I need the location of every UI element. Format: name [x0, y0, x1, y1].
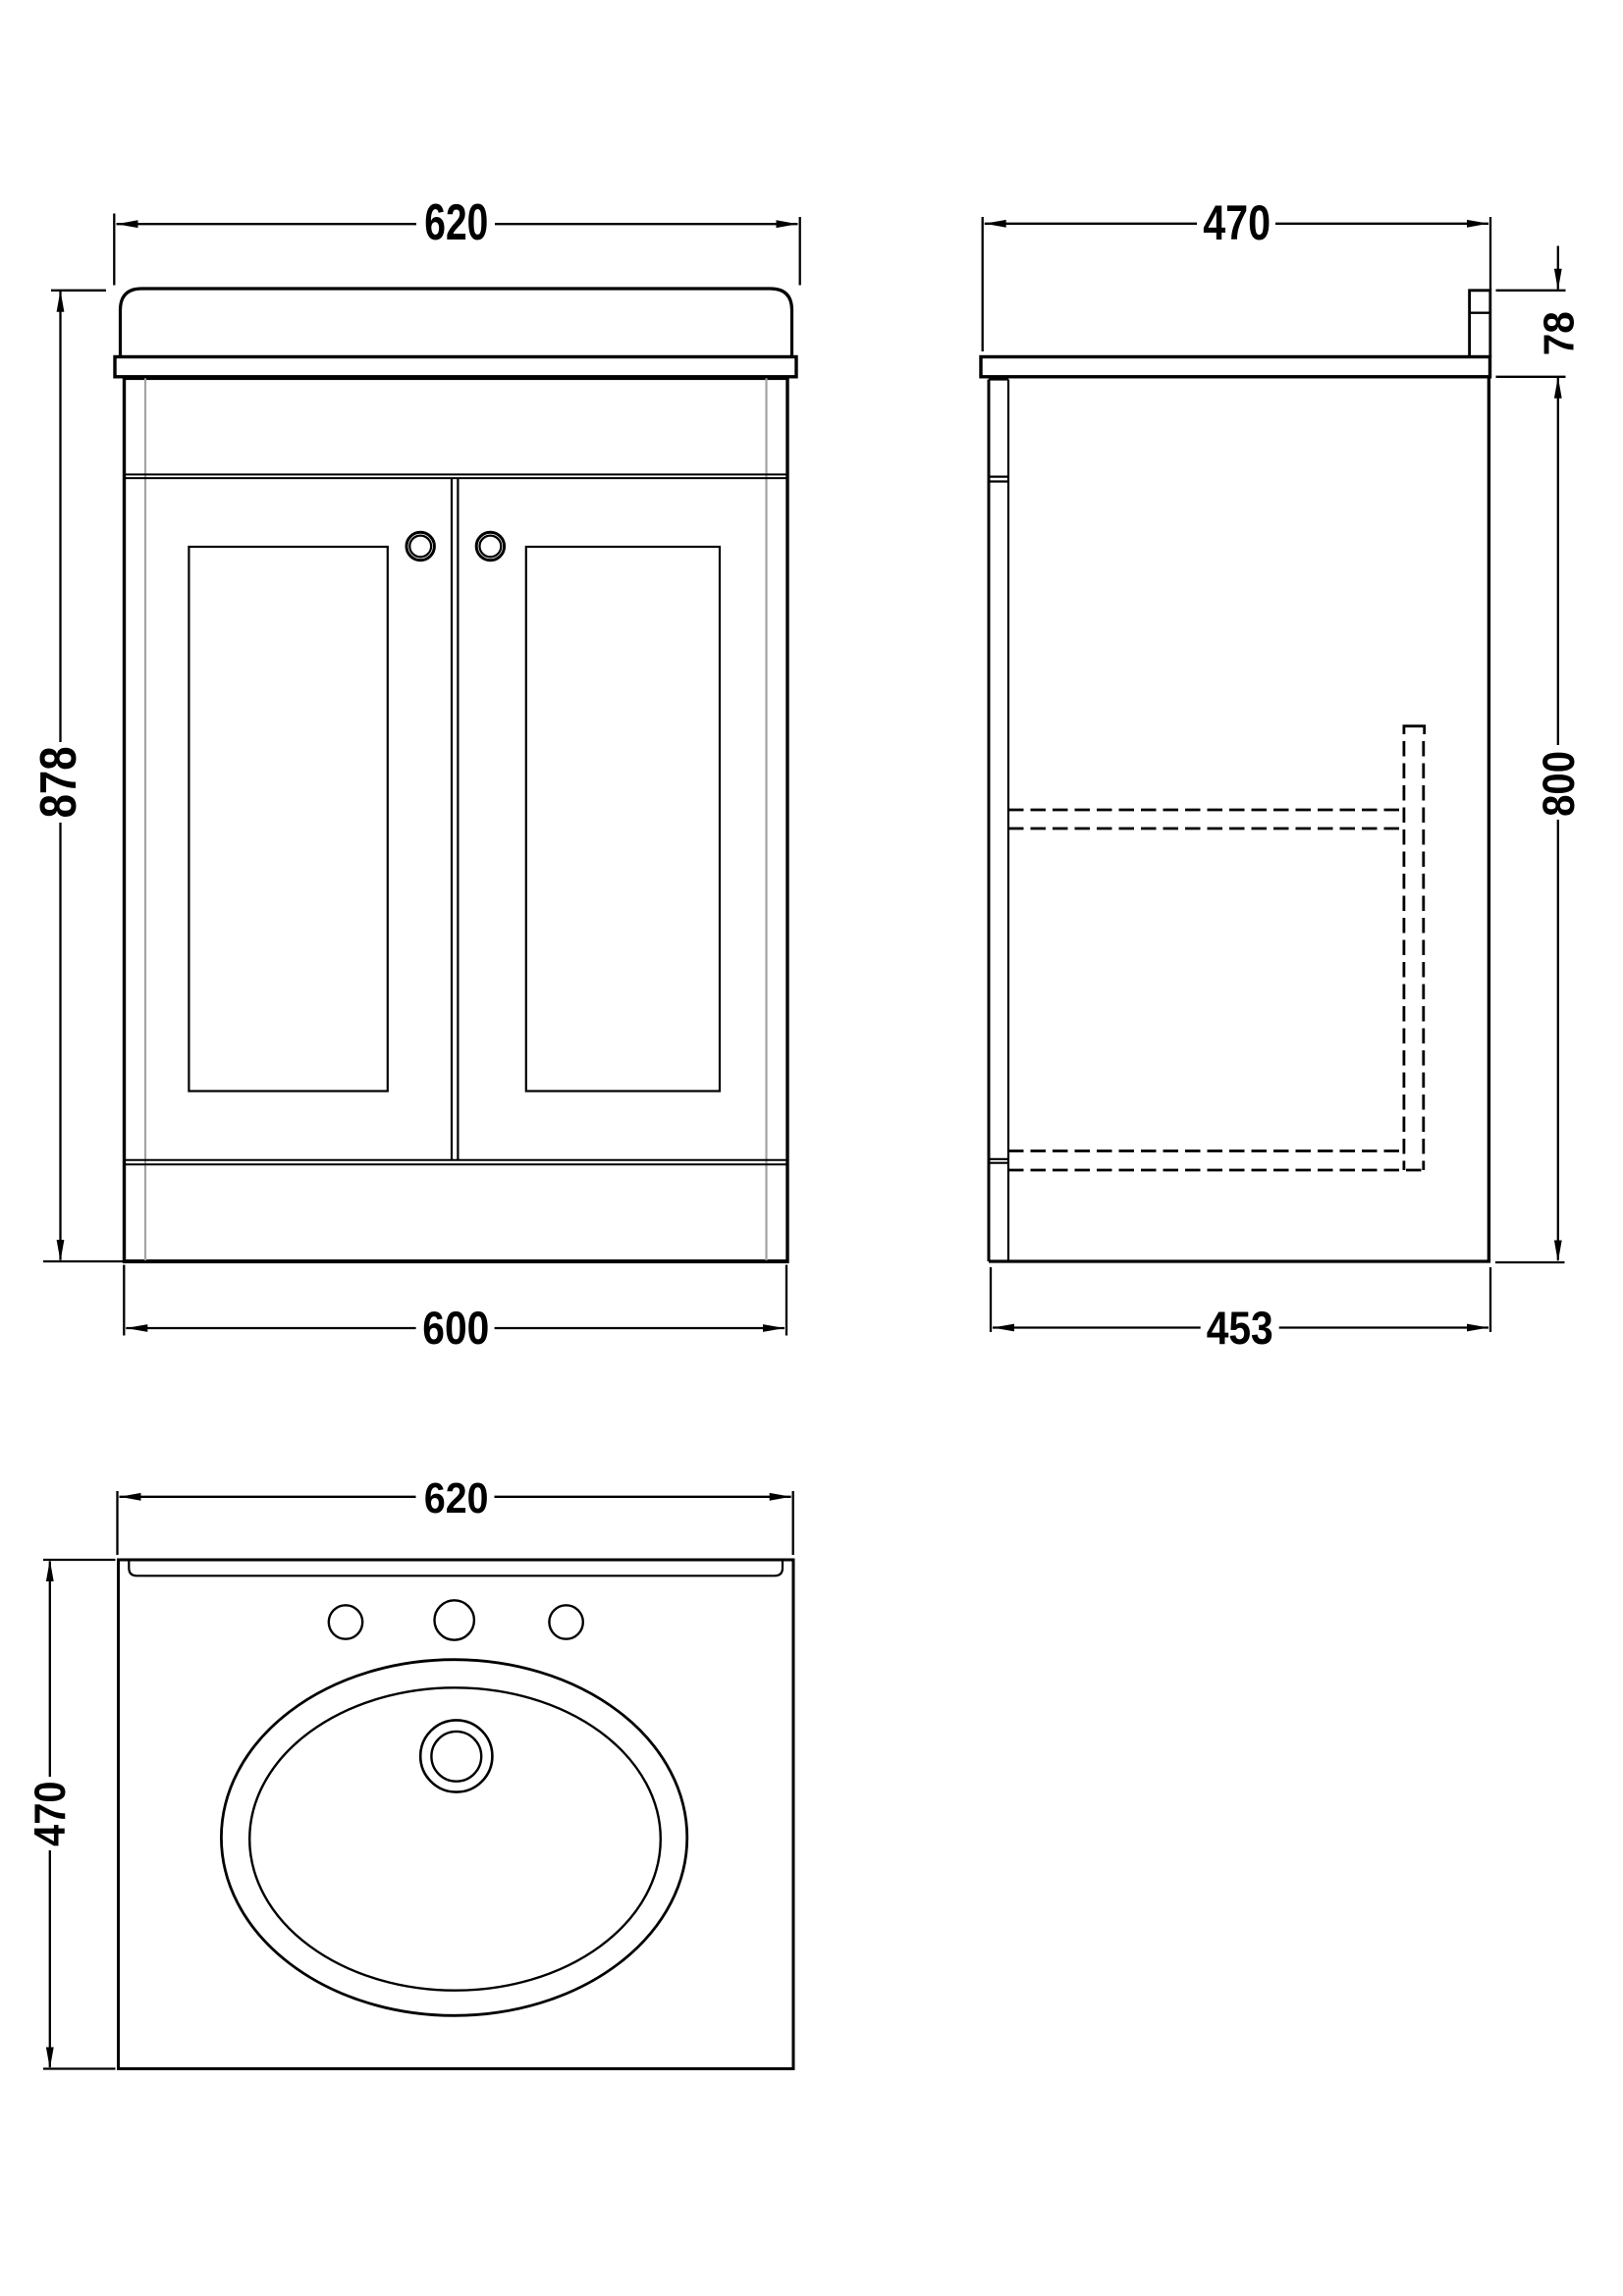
svg-text:453: 453: [1207, 1302, 1273, 1354]
svg-text:600: 600: [422, 1302, 489, 1354]
svg-text:78: 78: [1536, 311, 1584, 355]
svg-text:800: 800: [1534, 751, 1584, 817]
svg-text:878: 878: [29, 746, 86, 818]
svg-text:620: 620: [424, 193, 488, 250]
svg-text:470: 470: [1203, 195, 1271, 250]
svg-text:620: 620: [424, 1474, 489, 1522]
svg-text:470: 470: [27, 1781, 75, 1846]
